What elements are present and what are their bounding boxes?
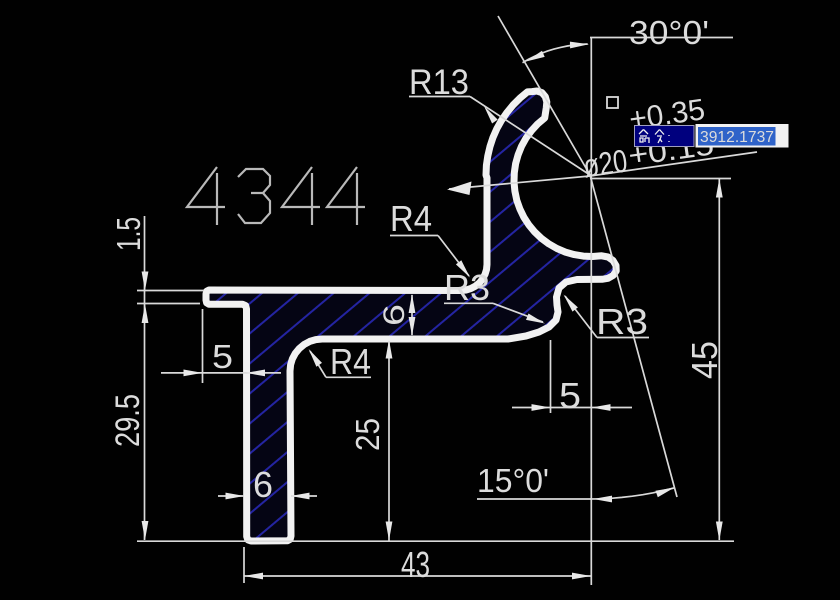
svg-text:25: 25 [349, 418, 386, 451]
svg-text:6: 6 [378, 304, 411, 326]
svg-text:1.5: 1.5 [110, 217, 147, 251]
svg-text:5: 5 [559, 375, 581, 416]
svg-text:6: 6 [253, 464, 273, 505]
svg-text:R4: R4 [390, 198, 432, 239]
svg-text:R3: R3 [444, 267, 490, 308]
svg-text:R13: R13 [409, 63, 469, 102]
svg-text:15°0': 15°0' [477, 462, 549, 499]
svg-text:ø20: ø20 [581, 142, 630, 184]
svg-text:5: 5 [212, 338, 233, 375]
svg-text:30°0': 30°0' [629, 14, 709, 51]
svg-text:3912.1737: 3912.1737 [700, 129, 774, 146]
svg-text:R4: R4 [330, 341, 371, 382]
svg-text:29.5: 29.5 [109, 394, 147, 447]
svg-text:45: 45 [684, 341, 725, 379]
svg-text:R3: R3 [596, 301, 648, 342]
svg-text:43: 43 [401, 544, 430, 585]
